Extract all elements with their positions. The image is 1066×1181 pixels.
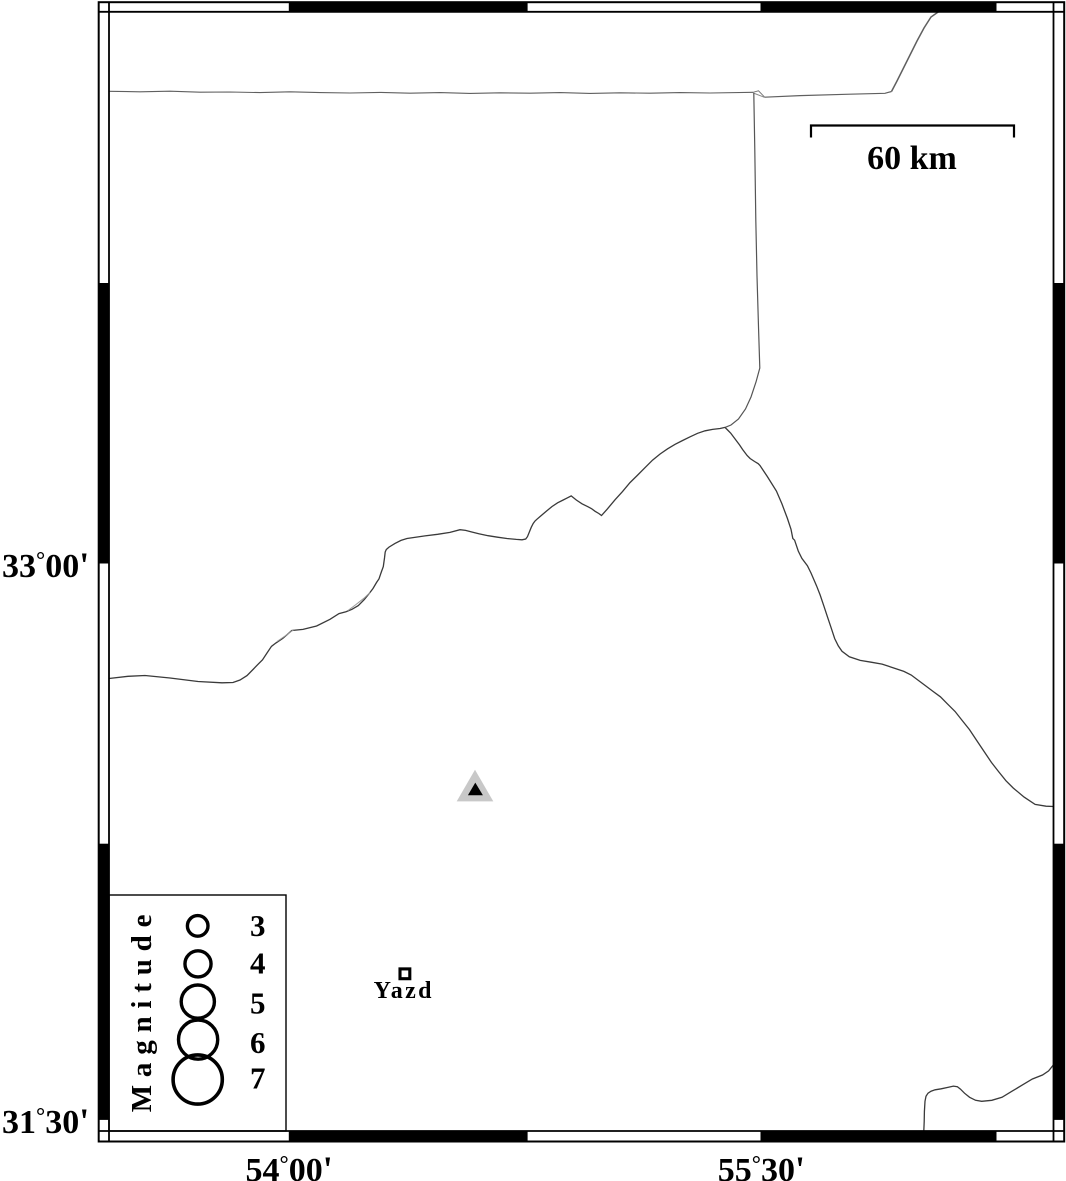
svg-text:6: 6: [250, 1025, 266, 1060]
svg-text:3: 3: [250, 908, 266, 943]
svg-text:7: 7: [250, 1061, 266, 1096]
svg-text:5: 5: [250, 986, 266, 1021]
svg-text:4: 4: [250, 946, 266, 981]
svg-text:Yazd: Yazd: [374, 978, 434, 1004]
svg-text:31°30': 31°30': [2, 1101, 89, 1141]
svg-text:Magnitude: Magnitude: [126, 907, 158, 1113]
svg-text:60 km: 60 km: [867, 140, 957, 177]
svg-text:33°00': 33°00': [2, 545, 89, 585]
svg-text:54°00': 54°00': [246, 1149, 333, 1181]
svg-text:55°30': 55°30': [718, 1149, 805, 1181]
